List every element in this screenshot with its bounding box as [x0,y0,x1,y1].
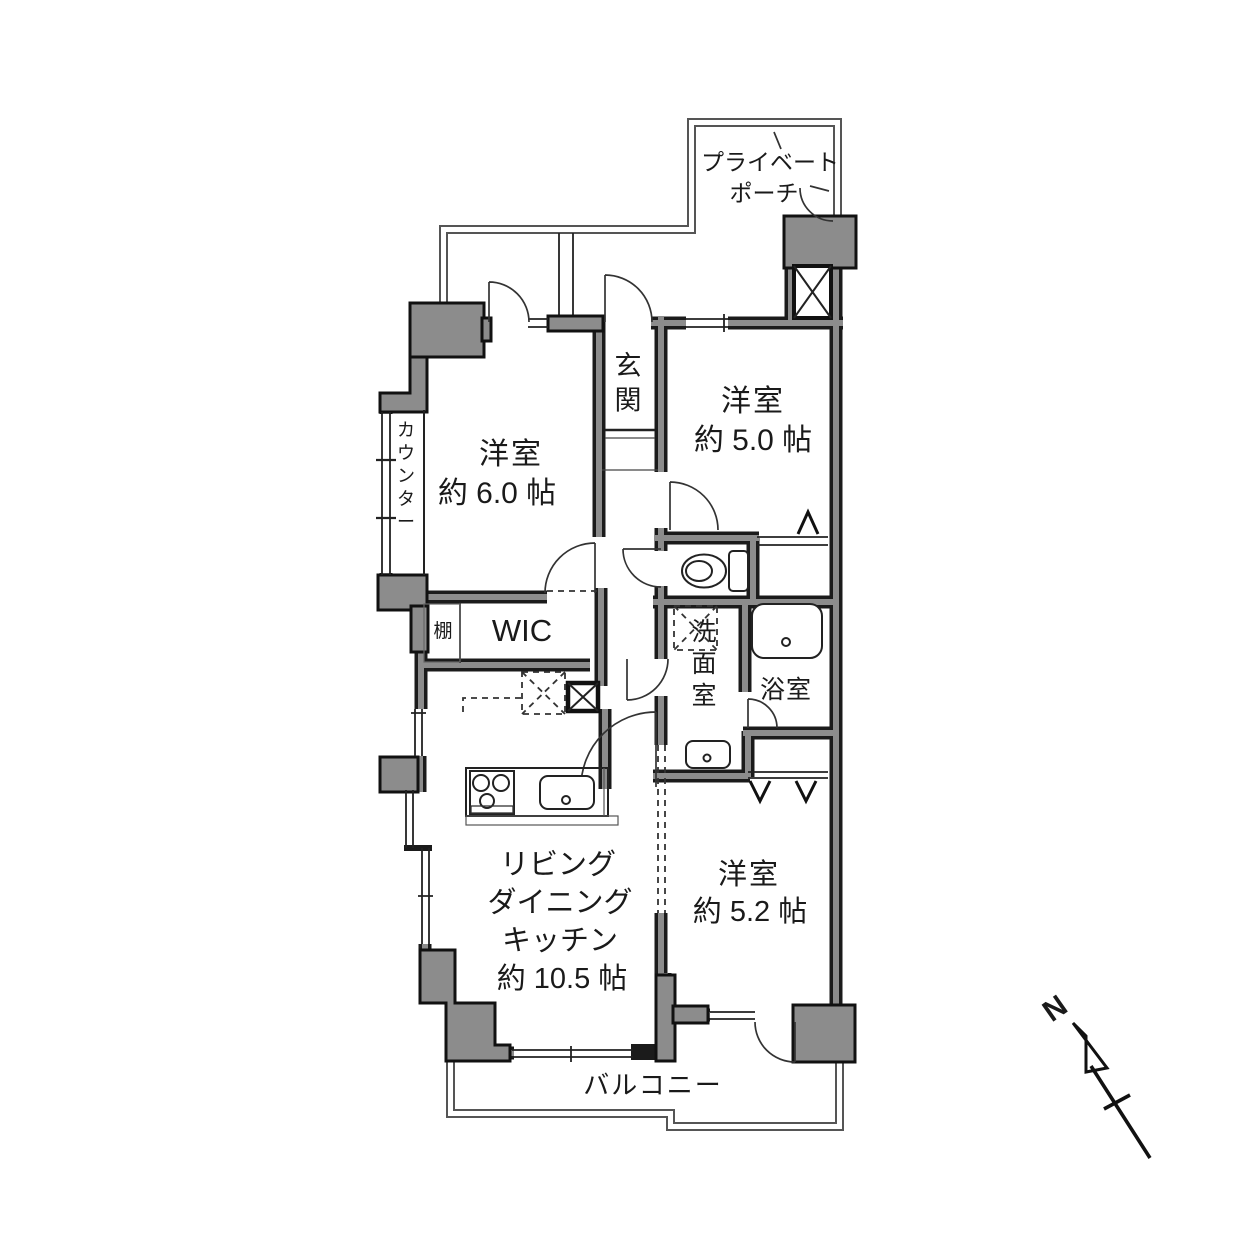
pipe-shaft-kitchen-icon [568,683,598,711]
balcony-label: バルコニー [583,1070,722,1100]
porch-label-2: ポーチ [730,180,799,206]
bed52-name-label: 洋室 [718,858,780,891]
bed5-name-label: 洋室 [721,385,785,418]
bed5-door [670,482,718,530]
bed52-closet-chevron-1 [750,781,770,801]
washbasin-icon [686,741,730,768]
genkan-step [602,430,658,470]
floor-plan-canvas: N プライベート ポーチ 洋室 約 6.0 帖 洋室 約 5.0 帖 玄関 カウ… [0,0,1252,1252]
porch-gate-door [774,132,833,221]
bed5-closet-chevron [798,512,818,534]
washroom-label: 洗面室 [691,618,716,710]
bed6-size-label: 約 6.0 帖 [438,477,556,510]
counter-label: カウンター [397,420,415,532]
compass-n-label: N [1037,989,1074,1028]
floor-plan-page: N プライベート ポーチ 洋室 約 6.0 帖 洋室 約 5.0 帖 玄関 カウ… [0,0,1252,1252]
bed5-size-label: 約 5.0 帖 [694,424,812,457]
ldk-door [581,712,656,787]
toilet-door [623,549,661,587]
toilet-icon [682,551,748,591]
washroom-door [627,659,668,700]
bed6-entry-door [489,282,529,322]
stove-icon [470,771,514,814]
entrance-door [605,275,652,322]
porch-label-1: プライベート [701,149,839,175]
bathtub-icon [752,604,822,658]
kitchen-sink-icon [540,776,594,809]
genkan-label: 玄関 [615,351,642,416]
fridge-space-icon [463,672,565,714]
north-arrow-icon: N [1037,989,1150,1158]
bed6-inner-door [545,543,595,593]
bed52-closet-chevron-2 [796,781,816,801]
bed52-balcony-door [755,1022,795,1062]
bathroom-label: 浴室 [760,676,812,704]
ldk-label-2: ダイニング [487,886,632,919]
ldk-label-3: キッチン [502,925,618,957]
pipe-shaft-icon [794,266,831,318]
shelf-label: 棚 [433,620,452,642]
bed6-name-label: 洋室 [479,438,543,471]
wic-label: WIC [492,613,552,648]
bed52-size-label: 約 5.2 帖 [693,895,807,928]
ldk-size-label: 約 10.5 帖 [497,962,628,995]
wall-block [631,1044,657,1060]
ldk-label-1: リビング [500,848,616,881]
